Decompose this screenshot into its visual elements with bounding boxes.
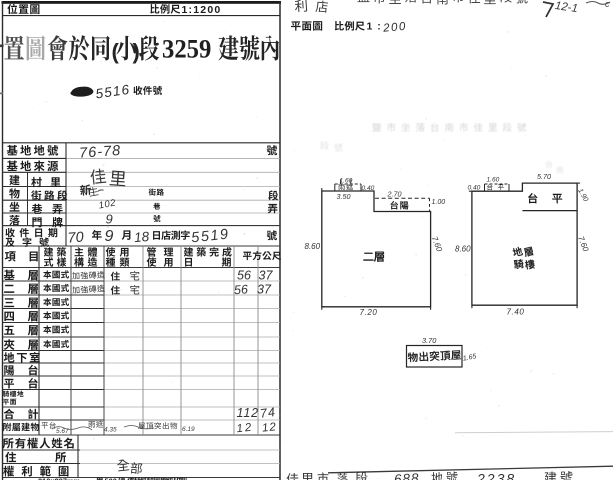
svg-text:18: 18 [133,229,150,245]
svg-text:70: 70 [67,229,84,246]
svg-text:500: 500 [105,476,117,480]
svg-text:1 :: 1 : [367,21,382,33]
svg-text:1:1200: 1:1200 [182,4,222,16]
svg-text:9: 9 [106,212,113,227]
svg-text:37: 37 [259,269,274,283]
svg-text:688: 688 [394,471,420,480]
svg-text:5.70: 5.70 [537,172,551,181]
svg-text:56: 56 [237,269,251,283]
svg-text:6.19: 6.19 [182,426,195,433]
svg-text:37: 37 [257,283,272,297]
svg-text:1.00: 1.00 [432,199,446,206]
svg-text:7.40: 7.40 [507,308,525,317]
svg-text:8.60: 8.60 [455,245,471,254]
svg-text:): ) [133,39,140,64]
svg-text:c: c [605,0,610,9]
svg-text:76-78: 76-78 [79,143,122,162]
svg-text:2.70: 2.70 [387,190,402,199]
svg-text:0.40: 0.40 [468,185,481,192]
svg-text:8.60: 8.60 [305,242,321,251]
svg-text:2238: 2238 [476,471,516,480]
svg-text:200: 200 [382,21,408,35]
svg-text:1.60: 1.60 [340,178,353,185]
svg-text:12: 12 [236,422,254,436]
svg-text:7.20: 7.20 [360,308,378,317]
svg-text:1.60: 1.60 [487,176,500,183]
svg-text:112: 112 [237,406,259,420]
svg-text:4.35: 4.35 [104,427,117,434]
svg-text:74: 74 [259,405,277,421]
svg-text:3.70: 3.70 [422,336,437,345]
svg-text:3.50: 3.50 [337,192,351,201]
svg-text:210×297mm: 210×297mm [38,476,81,480]
svg-text:3259: 3259 [162,35,211,64]
svg-text:56: 56 [234,282,249,297]
svg-text:9: 9 [105,228,114,245]
svg-text:0.40: 0.40 [362,185,375,192]
svg-text:12: 12 [261,421,277,434]
